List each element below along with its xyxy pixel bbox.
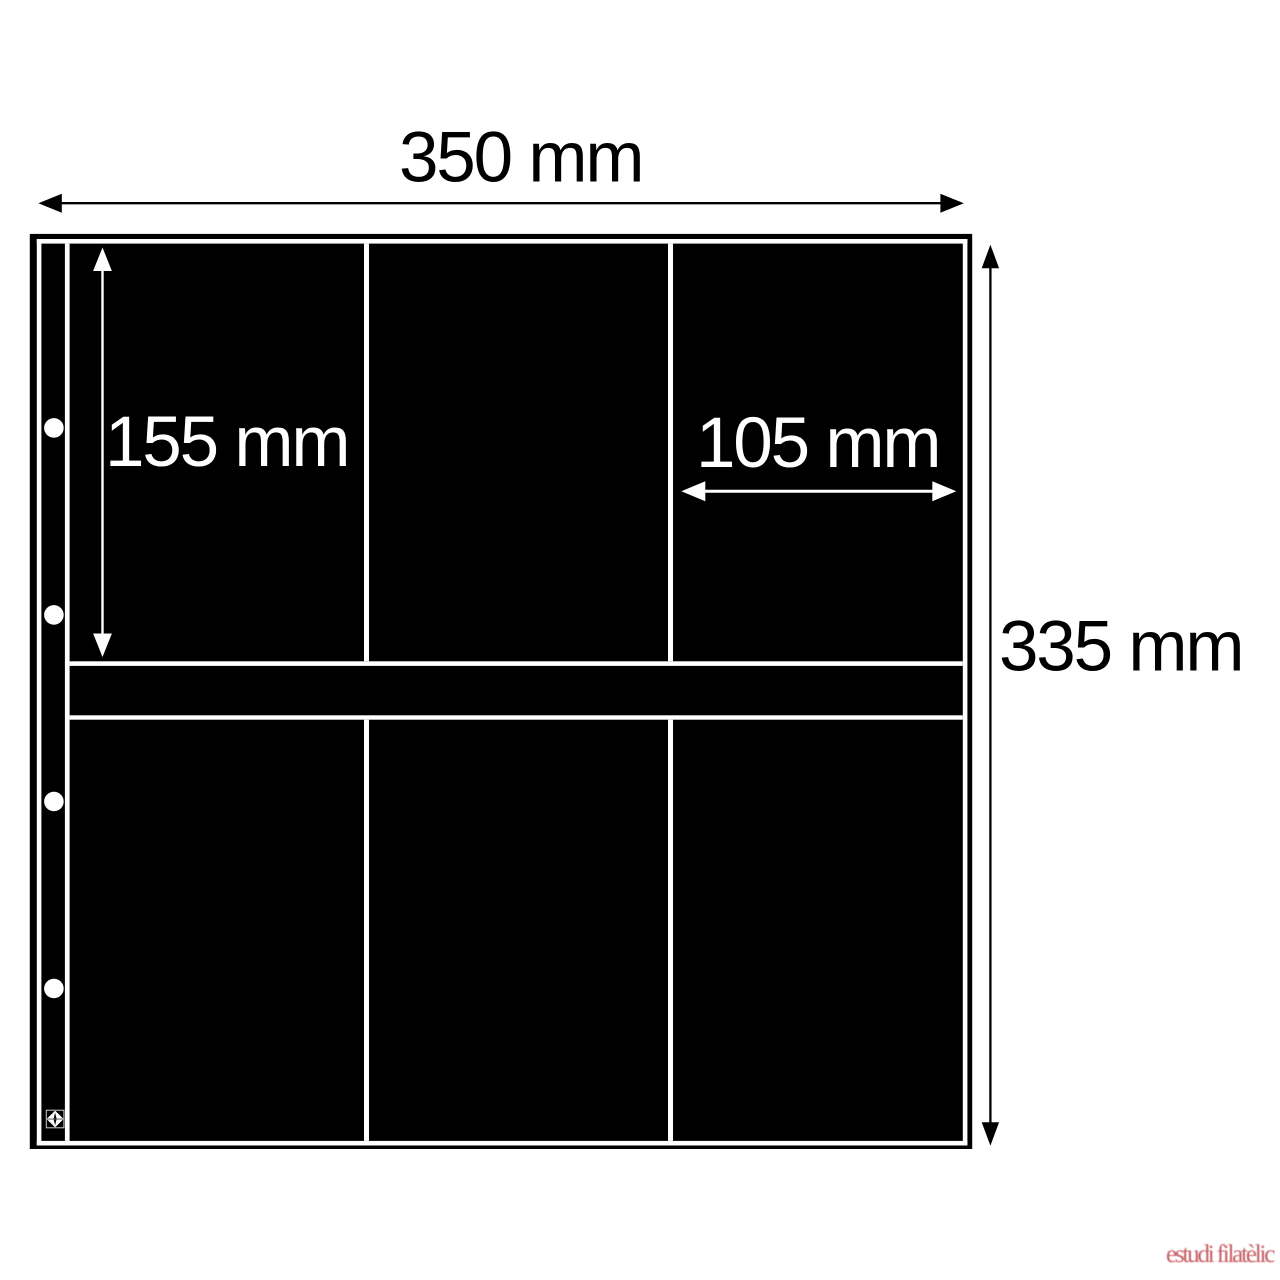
svg-text:155 mm: 155 mm <box>105 403 348 482</box>
svg-text:335 mm: 335 mm <box>999 608 1242 687</box>
svg-text:350 mm: 350 mm <box>399 119 642 198</box>
svg-text:105 mm: 105 mm <box>696 404 939 483</box>
svg-text:estudi filatèlic: estudi filatèlic <box>1166 1241 1275 1268</box>
